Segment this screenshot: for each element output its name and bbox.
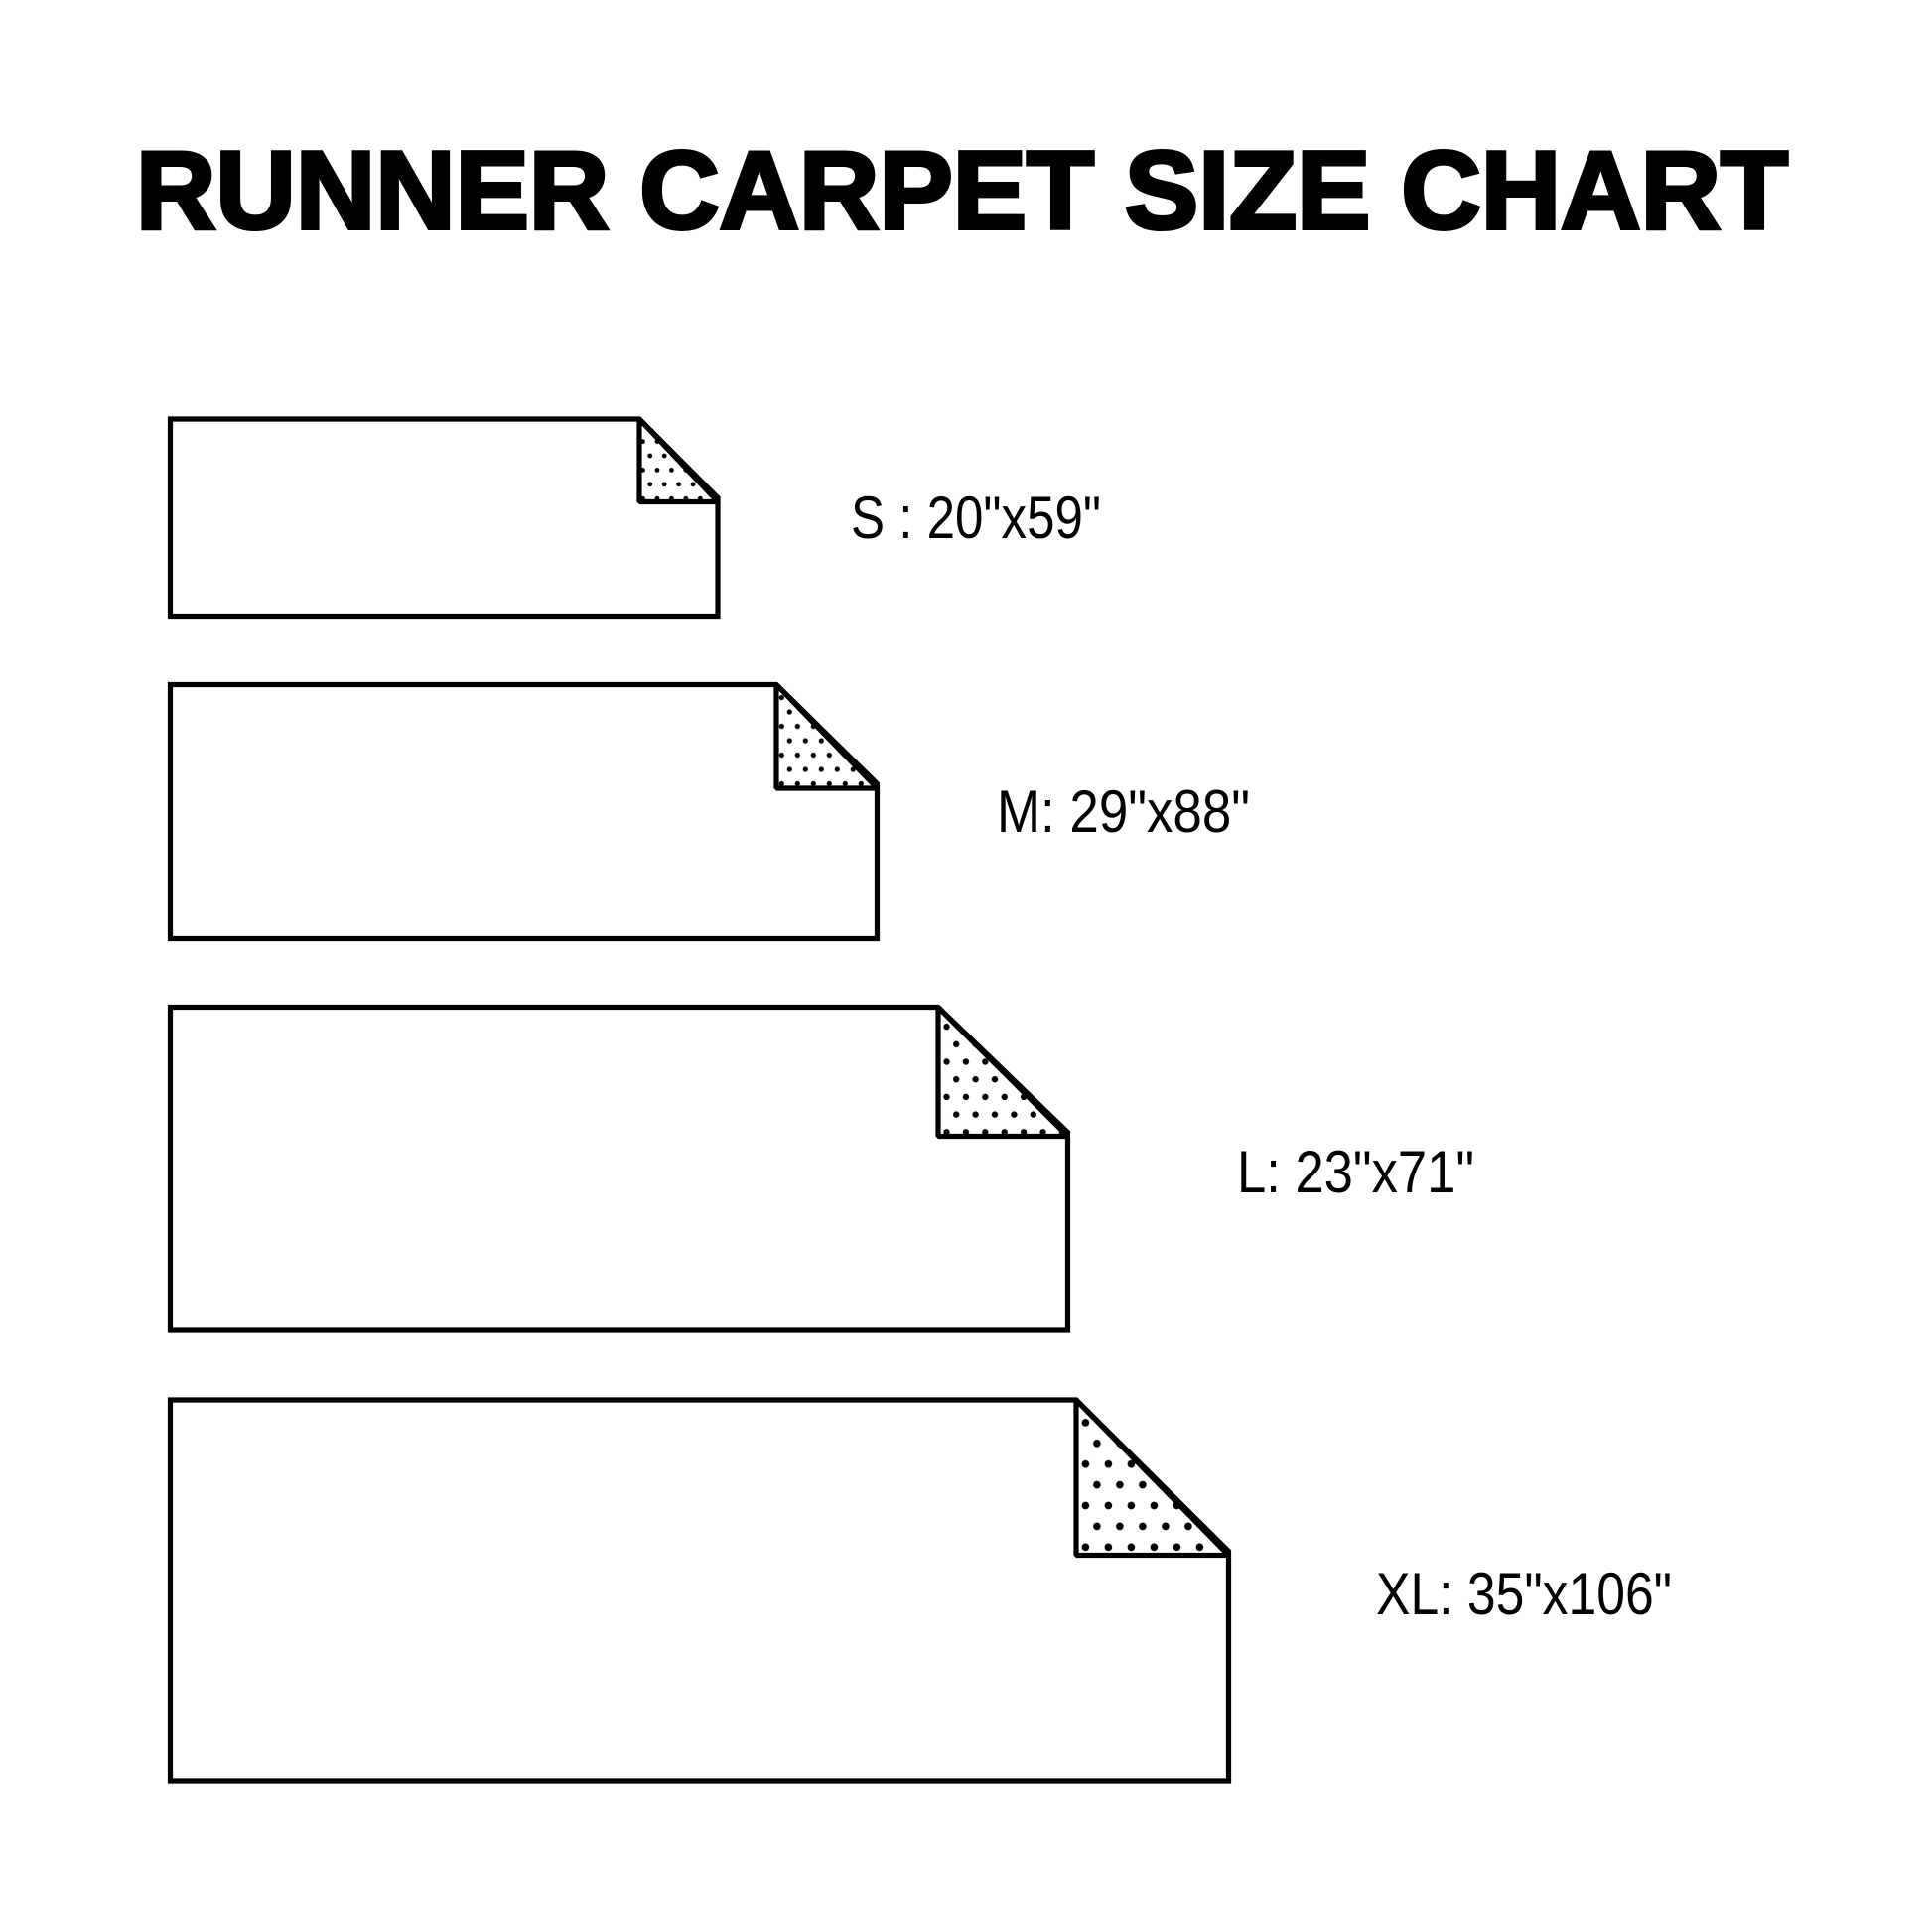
- svg-text:RUNNER CARPET SIZE CHART: RUNNER CARPET SIZE CHART: [136, 129, 1788, 252]
- svg-text:L: 23"x71": L: 23"x71": [1237, 1139, 1474, 1205]
- svg-text:S : 20"x59": S : 20"x59": [851, 484, 1101, 551]
- svg-text:XL: 35"x106": XL: 35"x106": [1376, 1561, 1672, 1627]
- svg-text:M: 29"x88": M: 29"x88": [997, 778, 1250, 845]
